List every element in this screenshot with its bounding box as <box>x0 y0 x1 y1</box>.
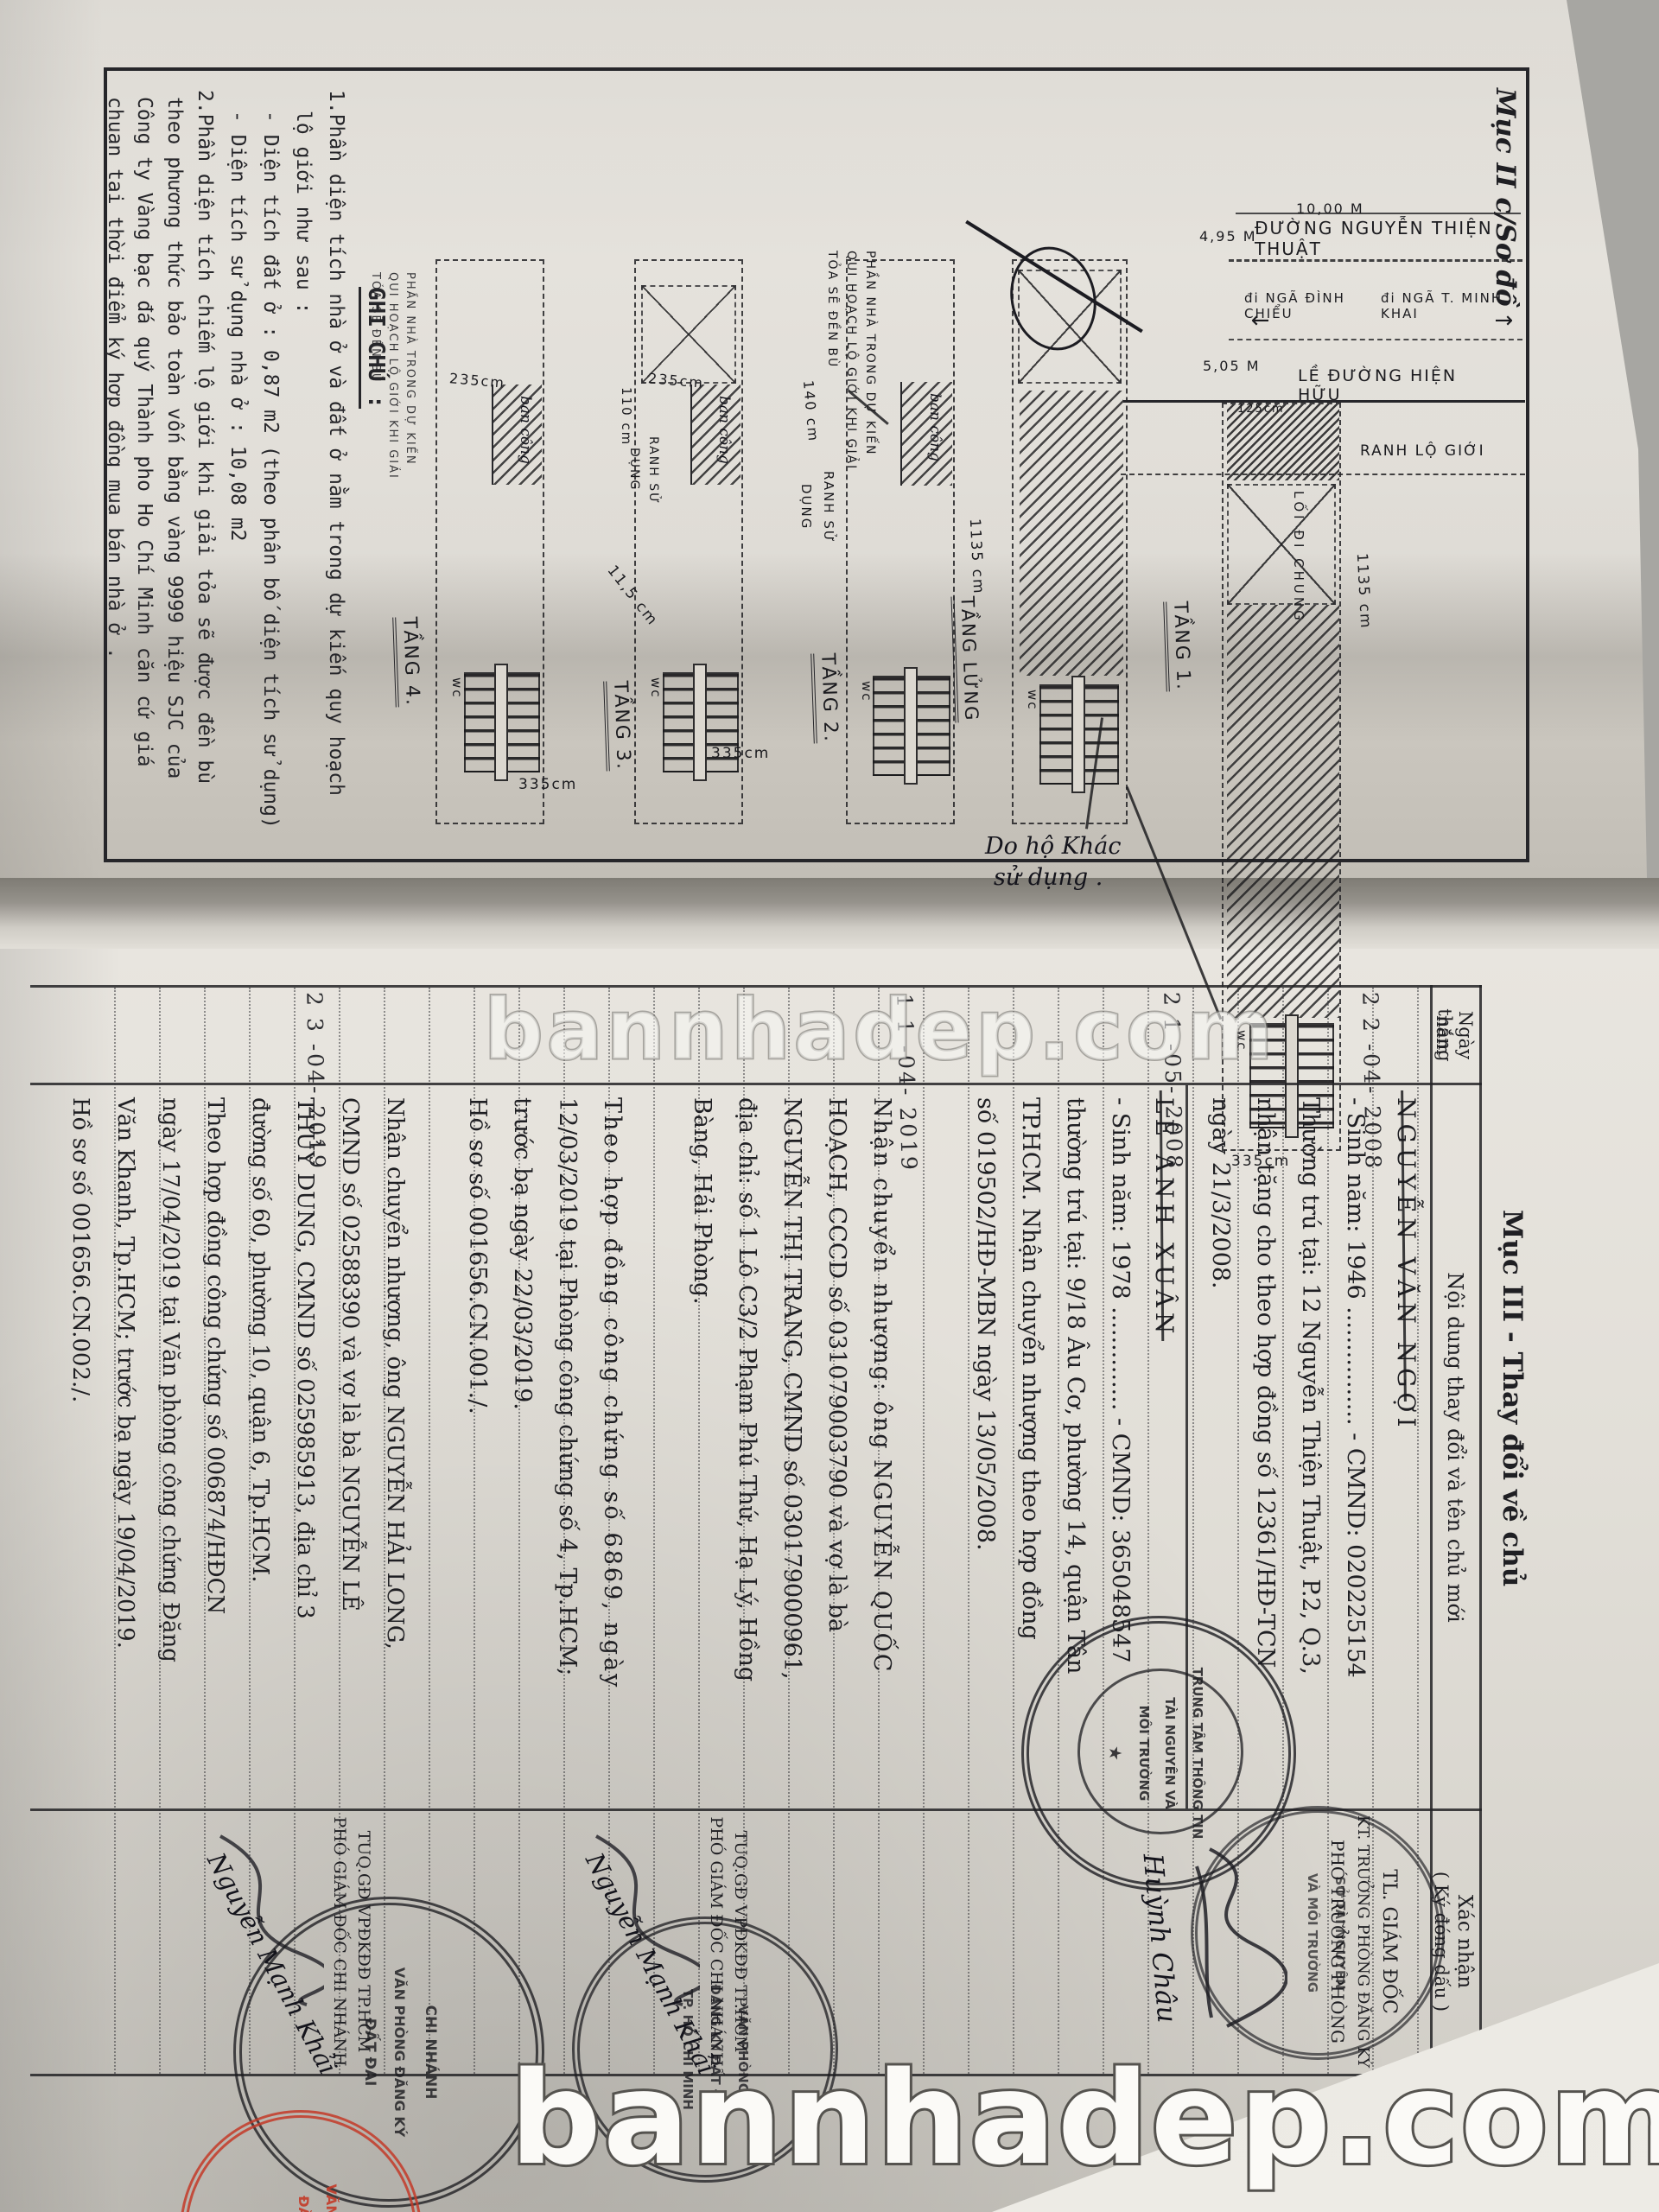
stamp-text: MÔI TRƯỜNG <box>1136 1624 1152 1883</box>
arrow-up-icon: ↑ <box>1490 311 1516 332</box>
document-photo: Mục II c/Sơ đồ ĐƯỜNG NGUYỄN THIỆN THUẬT … <box>0 0 1659 2212</box>
r2-line-5: số 019502/HĐ-MBN ngày 13/05/2008. <box>972 1097 999 1551</box>
ghi-chu-line-5: 2.Phần diện tích chiếm lộ giới khi giải … <box>194 90 216 784</box>
r4-line-6: ngày 17/04/2019 tại Văn phòng công chứng… <box>157 1097 183 1662</box>
do-ho-khac-note: Do hộ Khác <box>985 833 1166 860</box>
dim-line <box>1236 213 1521 214</box>
ghi-chu-line-3: - Diện tích đất ở : 0,87 m2 (theo phân b… <box>259 111 282 829</box>
t2-wc: wc <box>859 681 874 702</box>
lung-wc: wc <box>1025 690 1040 711</box>
lung-stairs <box>1039 684 1119 785</box>
dim-10-00: 10,00 M <box>1296 200 1374 217</box>
r3-line-5: Bàng, Hải Phòng. <box>689 1097 715 1305</box>
street-name-label: ĐƯỜNG NGUYỄN THIỆN THUẬT <box>1255 218 1514 259</box>
ruled-line <box>1058 988 1059 2074</box>
ghi-chu-line-2: lộ giới như sau : <box>292 111 315 314</box>
stamp-text: TRUNG TÂM THÔNG TIN <box>1190 1624 1205 1883</box>
t2-label: TẦNG 2. <box>810 652 842 743</box>
t3-xbox <box>641 285 736 384</box>
r3-line-6: Theo hợp đồng công chứng số 6869, ngày <box>599 1097 626 1689</box>
t2-stair-bar <box>904 667 918 785</box>
t4-stair-bar <box>494 664 508 781</box>
r1-line-3: Thường trú tại: 12 Nguyễn Thiện Thuật, P… <box>1297 1097 1324 1675</box>
t4-stairs <box>464 672 540 772</box>
stamp-red-text: VĂN PHÒNG <box>323 2118 340 2212</box>
stamp-star-icon: ★ <box>1105 1624 1126 1883</box>
ruled-line <box>1013 988 1014 2074</box>
r1-line-4: nhận tặng cho theo hợp đồng số 12361/HĐ-… <box>1252 1097 1279 1668</box>
t2-balcony-label: ban công <box>926 393 944 461</box>
muc3-title: Mục III - Thay đổi về chủ <box>1497 1210 1528 1586</box>
do-ho-khac-note2: sử dụng . <box>994 864 1141 891</box>
lung-hatch <box>1020 391 1123 676</box>
t3-ranh-su-dung-2: DỤNG <box>627 448 641 491</box>
t4-balcony-label: ban công <box>517 396 534 464</box>
r3-line-3: NGUYỄN THỊ TRANG, CMND số 030179000961, <box>779 1097 805 1680</box>
ghi-chu-line-4: - Diện tích sử dụng nhà ở : 10,08 m2 <box>226 111 249 542</box>
rotated-document: Mục II c/Sơ đồ ĐƯỜNG NGUYỄN THIỆN THUẬT … <box>0 0 1659 2212</box>
muc2-heading: Mục II c/Sơ đồ <box>1490 88 1521 307</box>
t3-ranh-su-dung-1: RANH SỬ <box>646 436 660 505</box>
t1-logioi-hatch <box>1227 404 1339 480</box>
street-edge-dashed <box>1229 339 1522 340</box>
ranh-lo-gioi-label: RANH LỘ GIỚI <box>1360 442 1490 460</box>
r3-line-4: địa chỉ: số 1 Lô C3/2 Phạm Phú Thứ, Hạ L… <box>734 1097 760 1681</box>
r2-line-4: TP.HCM. Nhận chuyển nhượng theo hợp đồng <box>1017 1097 1044 1640</box>
stamp-trung-tam-inner <box>1077 1669 1243 1834</box>
ruled-line <box>923 988 925 2074</box>
phan-nha-ann1-l1: PHẦN NHÀ TRONG DỰ KIẾN <box>863 251 877 455</box>
t1-label: TẦNG 1. <box>1163 601 1194 691</box>
r4-line-4: đường số 60, phường 10, quận 6, Tp.HCM. <box>247 1097 273 1583</box>
r3-line-9: Hồ sơ số 001656.CN.001./. <box>464 1097 491 1414</box>
r2-line-3: thường trú tại: 9/18 Âu Cơ, phường 14, q… <box>1062 1097 1089 1674</box>
table-top-line <box>1479 985 1482 2075</box>
t4-wc: wc <box>449 677 465 699</box>
r3-line-7: 12/03/2019 tại Phòng công chứng số 4, Tp… <box>554 1097 581 1675</box>
r2-line-2: - Sinh năm: 1978 .............. - CMND: … <box>1107 1097 1134 1663</box>
r3-line-2: HOẠCH, CCCD số 031079003790 và vợ là bà <box>823 1097 850 1632</box>
stamp-red-text: ĐĂNG KÝ <box>296 2118 312 2212</box>
r4-line-8: Hồ sơ số 001656.CN.002./. <box>67 1097 93 1402</box>
t3-stairs <box>663 672 739 772</box>
r3-line-8: trước bạ ngày 22/03/2019. <box>509 1097 536 1410</box>
street-centerline <box>1229 259 1522 262</box>
r4-line-1: Nhận chuyển nhượng, ông NGUYỄN HẢI LONG, <box>382 1097 408 1649</box>
t2-stairs <box>873 676 950 776</box>
lung-label: TẦNG LỬNG <box>950 596 982 723</box>
t3-dim-110: 110 cm <box>619 387 634 446</box>
loi-di-chung-label: LỐI ĐI CHUNG <box>1291 491 1306 624</box>
lung-stair-bar <box>1071 676 1085 793</box>
stamp-text: TÀI NGUYÊN VÀ <box>1162 1624 1178 1883</box>
header-date-2: năm <box>1433 987 1453 1084</box>
dim-5-05: 5,05 M <box>1203 358 1272 374</box>
r3-line-1: Nhận chuyển nhượng: ông NGUYỄN QUỐC <box>868 1097 895 1673</box>
stamp-text: SỞ TÀI NGUYÊN <box>1332 1813 1348 2053</box>
phan-nha-ann1-l3: TỎA SẼ ĐỀN BÙ <box>825 251 839 368</box>
ruled-line <box>968 988 969 2074</box>
dim-4-95: 4,95 M <box>1199 228 1268 245</box>
r1-line-2: - Sinh năm: 1946 ................ - CMND… <box>1342 1097 1369 1678</box>
watermark-bottom: bannhadep.com <box>510 2044 1659 2193</box>
page-thay-doi: Mục III - Thay đổi về chủ Ngày tháng năm… <box>0 942 1659 2212</box>
r4-line-2: CMND số 02588390 và vợ là bà NGUYỄN LÊ <box>337 1097 363 1611</box>
ghi-chu-line-1: 1.Phần diện tích nhà ở và đất ở nằm tron… <box>325 90 347 796</box>
ghi-chu-title: GHI CHÚ : <box>359 287 389 409</box>
r2-owner-name: LÊ ANH XUÂN <box>1150 1097 1179 1338</box>
r4-line-5: Theo hợp đồng công chứng số 006874/HĐCN <box>202 1097 228 1614</box>
watermark-center: bannhadep.com <box>484 982 1276 1078</box>
ghi-chu-line-7: Công ty Vàng bạc đá quý Thành pho Ho Chí… <box>133 97 156 766</box>
page-so-do: Mục II c/Sơ đồ ĐƯỜNG NGUYỄN THIỆN THUẬT … <box>0 0 1659 890</box>
phan-nha-ann2-l1: PHẦN NHÀ TRONG DỰ KIẾN <box>404 272 416 466</box>
stamp-so-tai-nguyen: SỞ TÀI NGUYÊN VÀ MÔI TRƯỜNG <box>1191 1806 1445 2060</box>
t1-xbox <box>1227 484 1336 605</box>
ruled-line <box>1103 988 1104 2074</box>
t3-stair-bar <box>693 664 707 781</box>
r4-line-7: Văn Khanh, Tp.HCM; trước bạ ngày 19/04/2… <box>112 1097 138 1649</box>
t3-wc: wc <box>648 677 664 699</box>
header-content: Nội dung thay đổi và tên chủ mới <box>1443 1089 1467 1806</box>
ghi-chu-line-8: chuan tại thời điểm ký hợp đồng mua bán … <box>104 97 126 659</box>
ghi-chu-line-6: theo phương thức bảo toàn vốn bằng vàng … <box>163 97 186 779</box>
t4-label: TẦNG 4. <box>392 616 423 707</box>
r1-line-5: ngày 21/3/2008. <box>1207 1097 1234 1289</box>
t2-ranh-su-dung-2: DỤNG <box>798 484 814 530</box>
t3-balcony-label: ban công <box>715 396 733 464</box>
stamp-text: VÀ MÔI TRƯỜNG <box>1305 1813 1320 2053</box>
r4-line-3: THỦY DUNG, CMND số 025985913, địa chỉ 3 <box>292 1097 318 1619</box>
phan-nha-ann1-l2: QUI HOẠCH LỘ GIỚI KHI GIẢI <box>844 251 858 470</box>
arrow-down-icon: ↓ <box>1246 311 1272 332</box>
le-duong-label: LỀ ĐƯỜNG HIỆN HỮU <box>1298 366 1505 404</box>
t3-label: TẦNG 3. <box>603 680 634 771</box>
t4-dim-335: 335cm <box>518 776 601 793</box>
t2-ranh-su-dung-1: RANH SỬ <box>821 471 836 543</box>
stamp-text: CHI NHÁNH <box>422 1905 439 2199</box>
